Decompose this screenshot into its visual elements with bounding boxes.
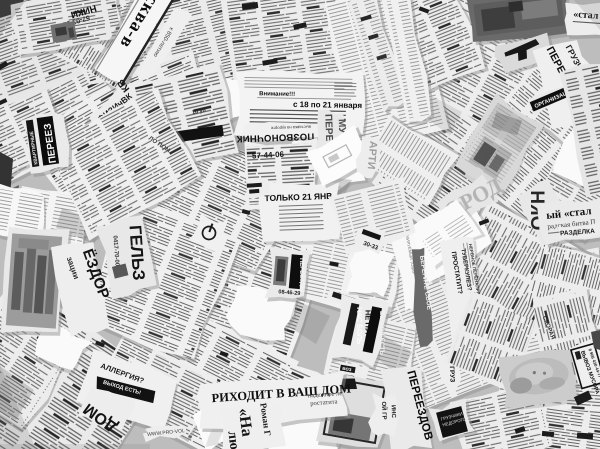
svg-text:Внимание!!!: Внимание!!! [259,91,295,98]
svg-text:57-44-06: 57-44-06 [252,150,285,161]
svg-text:ИНС: ИНС [390,405,396,419]
svg-text:НАС БОЛЬ: НАС БОЛЬ [355,307,362,344]
svg-text:ПЕРЕЕЗДЫ: ПЕРЕЕЗДЫ [298,258,305,292]
svg-text:ВЫХОД ЕСТЬ: ВЫХОД ЕСТЬ [378,311,385,355]
svg-text:ГЕЛЬЗ: ГЕЛЬЗ [125,224,148,281]
svg-text:ПЕРЕ: ПЕРЕ [322,114,334,142]
svg-text:лю: лю [224,430,241,449]
svg-text:АРТИ: АРТИ [365,141,379,170]
svg-text:с 18 по 21 января: с 18 по 21 января [293,100,363,110]
